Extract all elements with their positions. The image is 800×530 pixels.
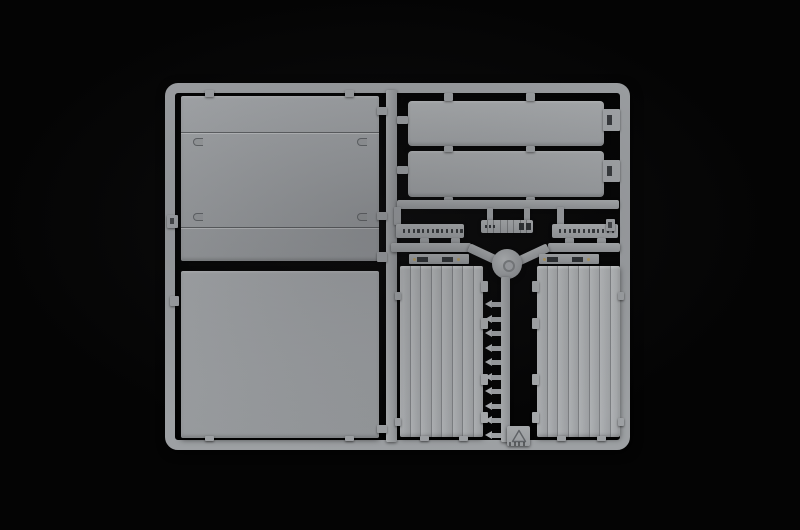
paint-dot <box>413 258 416 261</box>
hub-center-hole <box>503 260 515 272</box>
tab-slot <box>607 115 612 125</box>
ldot <box>489 225 491 228</box>
horizontal-runner-upper <box>397 200 619 209</box>
hole <box>592 229 594 233</box>
frame-side-tab <box>606 219 615 231</box>
ldot <box>493 225 495 228</box>
connector-stub <box>444 146 453 152</box>
door-planks <box>400 266 483 437</box>
connector-stub <box>420 436 429 441</box>
long-roof-panel <box>408 101 604 146</box>
panel-seam <box>181 227 379 229</box>
clip-column <box>485 300 501 440</box>
panel-corner-clip <box>193 138 203 146</box>
recycling-triangle-icon <box>511 429 527 443</box>
hinge-bar-right <box>539 254 599 264</box>
tab-notch <box>170 218 174 224</box>
panel-seam <box>181 132 379 134</box>
connector-stub <box>377 425 387 433</box>
center-divider-runner <box>386 90 397 442</box>
connector-post <box>394 207 401 225</box>
hole <box>597 229 599 233</box>
large-side-panel-with-seams <box>181 96 379 261</box>
hole <box>417 229 419 233</box>
tick <box>514 442 516 446</box>
connector-stub <box>345 90 354 97</box>
plank <box>442 266 453 437</box>
hole <box>583 229 585 233</box>
plank <box>421 266 432 437</box>
sprue-clip <box>485 416 501 425</box>
large-plain-panel <box>181 271 379 438</box>
door-edge-tab <box>532 318 539 329</box>
seg <box>508 220 515 233</box>
plank <box>548 266 559 437</box>
plank <box>600 266 611 437</box>
hole <box>451 229 453 233</box>
door-edge-tab <box>532 281 539 292</box>
connector-stub <box>618 418 624 426</box>
door-edge-tab <box>532 412 539 423</box>
connector-stub <box>459 436 468 441</box>
connector-stub <box>397 116 408 124</box>
frame-side-tab <box>170 296 179 306</box>
hole <box>602 229 604 233</box>
hinge-slot <box>417 257 428 262</box>
sprue-clip <box>485 344 501 353</box>
connector-post <box>557 207 564 225</box>
sprue-clip <box>485 358 501 367</box>
hole <box>578 229 580 233</box>
door-edge-tab <box>481 281 488 292</box>
sprue-clip <box>485 300 501 309</box>
hole <box>408 229 410 233</box>
ribbed-door-right <box>537 266 620 437</box>
hinge-slot <box>547 257 558 262</box>
panel-corner-clip <box>357 138 367 146</box>
horizontal-runner-lower-right <box>548 243 620 252</box>
hole <box>413 229 415 233</box>
hole <box>564 229 566 233</box>
plank <box>569 266 580 437</box>
panel-corner-clip <box>193 213 203 221</box>
connector-stub <box>557 436 566 441</box>
plank <box>411 266 422 437</box>
connector-stub <box>395 418 401 426</box>
hole <box>436 229 438 233</box>
ladder-strip <box>481 220 533 233</box>
sprue-clip <box>485 315 501 324</box>
roof-panel-end-tab <box>603 109 620 131</box>
plank <box>400 266 411 437</box>
hole <box>588 229 590 233</box>
roof-panel-end-tab <box>603 160 620 182</box>
connector-stub <box>205 436 214 441</box>
hole <box>573 229 575 233</box>
tab-slot <box>607 166 612 176</box>
connector-stub <box>345 436 354 441</box>
plank <box>432 266 443 437</box>
mold-tick-marks <box>509 442 525 446</box>
ladder-slot <box>526 223 531 230</box>
connector-stub <box>444 93 453 101</box>
connector-stub <box>395 292 401 300</box>
panel-corner-clip <box>357 213 367 221</box>
paint-dot <box>587 258 590 261</box>
ribbed-door-left <box>400 266 483 437</box>
connector-stub <box>205 90 214 97</box>
perforated-strip-left <box>396 224 464 238</box>
plank <box>453 266 464 437</box>
hinge-bar-left <box>409 254 469 264</box>
connector-stub <box>526 146 535 152</box>
hinge-slot <box>442 257 453 262</box>
seg <box>501 220 508 233</box>
ladder-slot <box>519 223 524 230</box>
plank <box>590 266 601 437</box>
frame-side-tab <box>167 215 178 228</box>
photo-stage <box>0 0 800 530</box>
connector-stub <box>397 166 408 174</box>
ldot <box>485 225 487 228</box>
hole <box>403 229 405 233</box>
hole <box>559 229 561 233</box>
connector-stub <box>597 436 606 441</box>
sprue-clip <box>485 329 501 338</box>
connector-stub <box>377 107 387 115</box>
tick <box>509 442 511 446</box>
horizontal-runner-lower-left <box>391 243 471 252</box>
hole <box>432 229 434 233</box>
ladder-dots <box>485 225 495 228</box>
connector-stub <box>618 292 624 300</box>
hole <box>569 229 571 233</box>
hinge-slot <box>572 257 583 262</box>
long-roof-panel <box>408 151 604 197</box>
hole <box>441 229 443 233</box>
sprue-clip <box>485 387 501 396</box>
hole <box>456 229 458 233</box>
paint-dot <box>543 258 546 261</box>
sprue-clip <box>485 431 501 440</box>
connector-stub <box>377 212 387 220</box>
tick <box>518 442 520 446</box>
hole <box>427 229 429 233</box>
tab-notch <box>608 222 612 228</box>
door-center-runner <box>501 277 510 442</box>
plank <box>579 266 590 437</box>
sprue-clip <box>485 402 501 411</box>
plank <box>463 266 474 437</box>
connector-stub <box>526 93 535 101</box>
connector-stub <box>377 252 387 262</box>
plank <box>558 266 569 437</box>
seg <box>494 220 501 233</box>
paint-dot <box>457 258 460 261</box>
hole <box>422 229 424 233</box>
hole <box>446 229 448 233</box>
door-planks <box>537 266 620 437</box>
tick <box>523 442 525 446</box>
sprue-clip <box>485 373 501 382</box>
hole <box>460 229 462 233</box>
door-edge-tab <box>532 374 539 385</box>
